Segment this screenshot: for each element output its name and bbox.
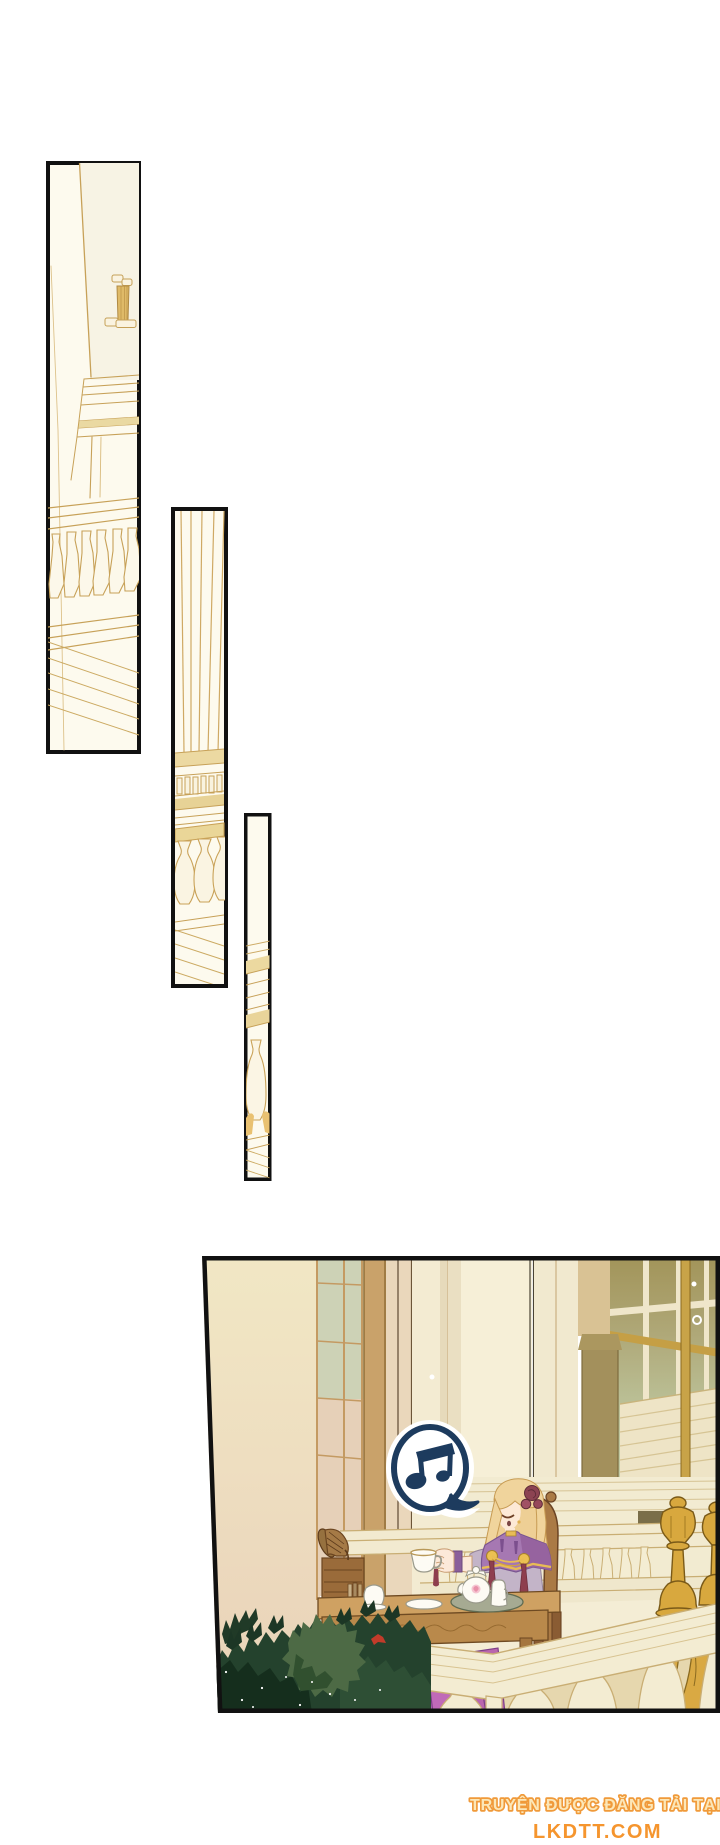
- svg-text:TRUYỆN ĐƯỢC ĐĂNG TẢI TẠI: TRUYỆN ĐƯỢC ĐĂNG TẢI TẠI: [470, 1795, 720, 1814]
- svg-text:LKDTT.COM: LKDTT.COM: [533, 1821, 662, 1843]
